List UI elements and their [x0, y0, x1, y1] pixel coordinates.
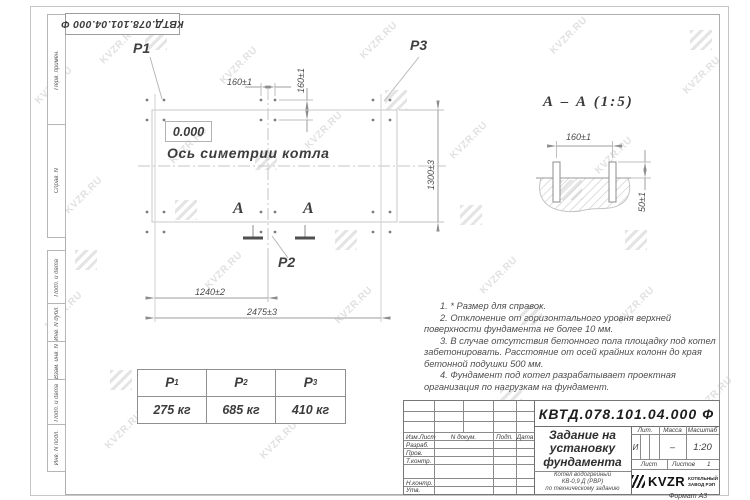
tb-row-utv: Утв.: [406, 487, 420, 494]
tb-col-data: Дата: [516, 434, 534, 441]
dim-2475: 2475±3: [247, 307, 277, 317]
kvzr-logo-icon: [632, 475, 645, 488]
tb-scale-value: 1:20: [686, 442, 719, 453]
tb-col-podp: Подп.: [493, 434, 516, 441]
kvzr-logo-text: KVZR: [648, 474, 685, 489]
section-view-title: А – А (1:5): [543, 94, 634, 111]
load-table-header-p3: P3: [276, 370, 345, 397]
p-subscript: 2: [243, 378, 247, 387]
tb-col-ndocum: N докум.: [434, 434, 493, 441]
kvzr-caption-line2: ЗАВОД РЭП: [688, 482, 718, 487]
format-label: Формат А3: [648, 493, 728, 500]
load-point-p3-label: P3: [410, 37, 427, 53]
tb-mass-value: –: [659, 442, 686, 452]
technical-notes: 1. * Размер для справок. 2. Отклонение о…: [424, 301, 716, 393]
dim-1300: 1300±3: [426, 160, 436, 190]
section-dim-160: 160±1: [566, 132, 591, 142]
load-table-value-p3: 410 кг: [276, 397, 345, 424]
tb-row-nkontr: Н.контр.: [406, 480, 433, 487]
p-subscript: 1: [174, 378, 178, 387]
section-mark-a-left: А: [233, 200, 244, 218]
kvzr-logo-caption: КОТЕЛЬНЫЙ ЗАВОД РЭП: [688, 476, 718, 487]
load-table-header-p2: P2: [207, 370, 276, 397]
load-table-header-p1: P1: [138, 370, 207, 397]
note-4: 4. Фундамент под котел разрабатывает про…: [424, 370, 716, 393]
tb-lit-value: И: [631, 443, 640, 452]
kvzr-caption-line1: КОТЕЛЬНЫЙ: [688, 476, 718, 481]
tb-manufacturer-logo: KVZR КОТЕЛЬНЫЙ ЗАВОД РЭП: [631, 469, 719, 494]
tb-col-izm: Изм.Лист: [406, 434, 436, 441]
p-symbol: P: [304, 375, 313, 390]
plan-view: [138, 57, 446, 322]
load-table-value-p1: 275 кг: [138, 397, 207, 424]
tb-doc-number: КВТД.078.101.04.000 Ф: [534, 401, 719, 426]
dim-160-vertical: 160±1: [296, 68, 306, 93]
tb-subtitle-line3: по техническому заданию: [534, 486, 631, 493]
dim-1240: 1240±2: [195, 287, 225, 297]
tb-lit-header: Лит.: [631, 427, 659, 434]
title-block: Изм.Лист N докум. Подп. Дата Разраб. Про…: [403, 400, 720, 495]
tb-sheets-label: Листов: [672, 461, 695, 468]
tb-row-tkontr: Т.контр.: [406, 458, 431, 465]
section-dim-50: 50±1: [637, 192, 647, 212]
tb-subtitle-line1: Котел водогрейный: [534, 472, 631, 479]
boiler-axis-label: Ось симетрии котла: [167, 145, 330, 161]
p-symbol: P: [234, 375, 243, 390]
level-value: 0.000: [173, 125, 204, 139]
tb-subtitle-line2: КВ-0,9 Д (РВР): [534, 479, 631, 486]
tb-row-prov: Пров.: [406, 450, 423, 457]
tb-sheets-value: 1: [707, 461, 711, 468]
section-view: [536, 141, 651, 212]
tb-title-line1: Задание на: [549, 429, 616, 443]
dim-160-horizontal: 160±1: [227, 77, 252, 87]
p-subscript: 3: [313, 378, 317, 387]
tb-mass-header: Масса: [659, 427, 686, 434]
tb-sheet-label: Лист: [631, 461, 667, 468]
tb-drawing-title: Задание на установку фундамента: [534, 427, 631, 471]
tb-title-line3: фундамента: [543, 456, 621, 470]
load-point-p2-label: P2: [278, 254, 295, 270]
tb-scale-header: Масштаб: [686, 427, 719, 434]
tb-row-razrab: Разраб.: [406, 442, 429, 449]
load-table-value-p2: 685 кг: [207, 397, 276, 424]
section-mark-a-right: А: [303, 200, 314, 218]
level-mark: 0.000: [165, 121, 212, 142]
load-point-p1-label: P1: [133, 40, 150, 56]
note-2: 2. Отклонение от горизонтального уровня …: [424, 313, 716, 336]
note-3: 3. В случае отсутствия бетонного пола пл…: [424, 336, 716, 371]
tb-title-line2: установку: [550, 442, 615, 456]
load-table: P1 P2 P3 275 кг 685 кг 410 кг: [137, 369, 346, 424]
tb-subtitle: Котел водогрейный КВ-0,9 Д (РВР) по техн…: [534, 472, 631, 494]
p-symbol: P: [165, 375, 174, 390]
drawing-sheet: KVZR.RU KVZR.RU KVZR.RU KVZR.RU KVZR.RU …: [0, 0, 750, 500]
note-1: 1. * Размер для справок.: [424, 301, 716, 313]
